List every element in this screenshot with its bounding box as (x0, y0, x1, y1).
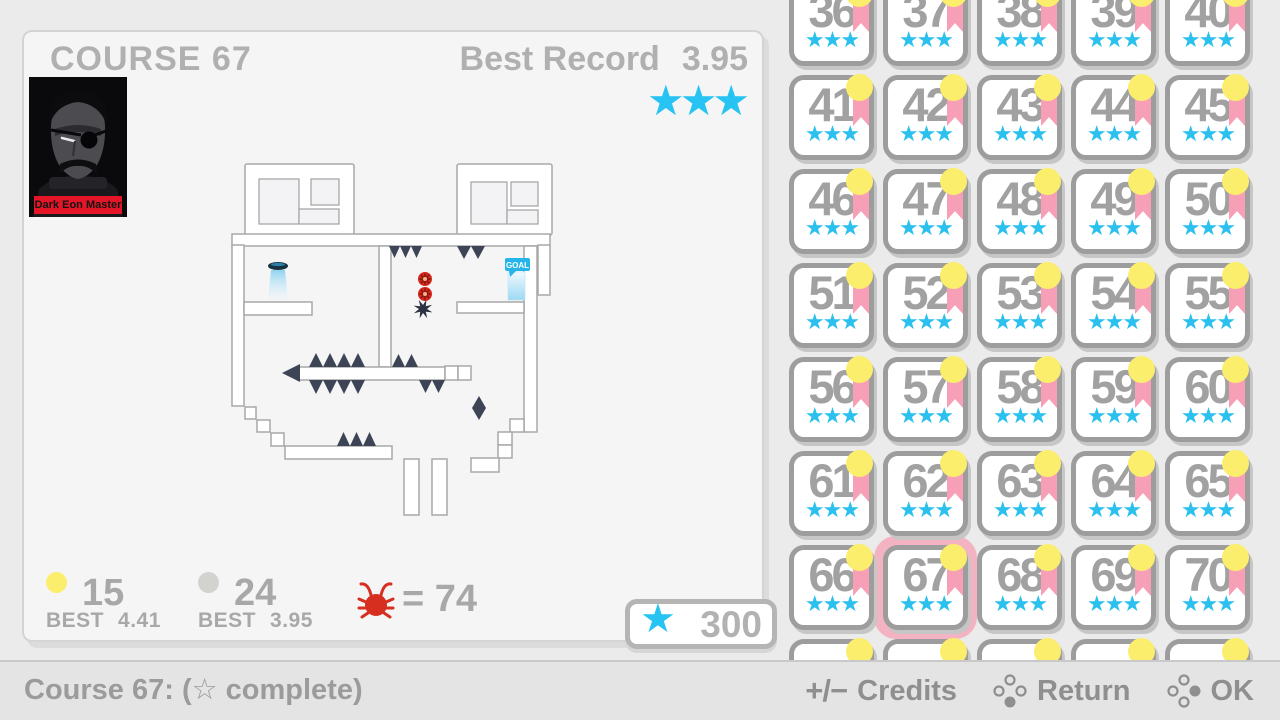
medal-circle-icon (1222, 450, 1249, 477)
star-icon: ★ (640, 596, 676, 642)
medal-circle-icon (1128, 262, 1155, 289)
course-cell-70[interactable]: 70★★★ (1165, 545, 1250, 630)
course-stars: ★★★ (888, 497, 963, 523)
course-stars: ★★★ (888, 591, 963, 617)
medal-circle-icon (940, 638, 967, 662)
course-stars: ★★★ (1076, 497, 1151, 523)
return-control[interactable]: Return (993, 674, 1130, 708)
silver-medal-best: BEST3.95 (198, 610, 313, 631)
course-stars: ★★★ (888, 403, 963, 429)
credits-control[interactable]: +/− Credits (805, 673, 957, 709)
course-grid: 36★★★37★★★38★★★39★★★40★★★41★★★42★★★43★★★… (780, 0, 1280, 662)
star-total-value: 300 (700, 605, 762, 645)
medal-circle-icon (1034, 168, 1061, 195)
course-cell-57[interactable]: 57★★★ (883, 357, 968, 442)
course-cell-66[interactable]: 66★★★ (789, 545, 874, 630)
course-cell-62[interactable]: 62★★★ (883, 451, 968, 536)
course-cell-47[interactable]: 47★★★ (883, 169, 968, 254)
course-stars: ★★★ (888, 309, 963, 335)
course-stars: ★★★ (982, 121, 1057, 147)
record-star-icon: ★ (712, 77, 750, 124)
medal-circle-icon (940, 168, 967, 195)
course-stars: ★★★ (1076, 403, 1151, 429)
course-cell-60[interactable]: 60★★★ (1165, 357, 1250, 442)
course-cell-68[interactable]: 68★★★ (977, 545, 1062, 630)
bottom-bar: Course 67: (☆ complete) +/− Credits Retu… (0, 660, 1280, 720)
ufo-icon (268, 262, 288, 300)
course-stars: ★★★ (794, 215, 869, 241)
course-stars: ★★★ (794, 403, 869, 429)
course-stars: ★★★ (1170, 591, 1245, 617)
course-cell-partial[interactable] (1165, 639, 1250, 662)
medal-circle-icon (1222, 638, 1249, 662)
medal-circle-icon (1128, 544, 1155, 571)
silver-medal-count: 24 (234, 574, 276, 612)
medal-circle-icon (940, 450, 967, 477)
course-cell-64[interactable]: 64★★★ (1071, 451, 1156, 536)
course-cell-partial[interactable] (789, 639, 874, 662)
course-stars: ★★★ (982, 403, 1057, 429)
medal-circle-icon (1222, 544, 1249, 571)
course-stars: ★★★ (1170, 309, 1245, 335)
medal-circle-icon (1034, 450, 1061, 477)
medal-circle-icon (846, 638, 873, 662)
course-stars: ★★★ (982, 591, 1057, 617)
course-cell-partial[interactable] (977, 639, 1062, 662)
course-cell-65[interactable]: 65★★★ (1165, 451, 1250, 536)
medal-circle-icon (1128, 168, 1155, 195)
medal-circle-icon (940, 544, 967, 571)
course-stars: ★★★ (794, 27, 869, 53)
course-cell-45[interactable]: 45★★★ (1165, 75, 1250, 160)
controls: +/− Credits Return O (805, 662, 1254, 720)
course-stars: ★★★ (982, 309, 1057, 335)
credits-label: Credits (857, 675, 957, 708)
course-cell-63[interactable]: 63★★★ (977, 451, 1062, 536)
course-stars: ★★★ (888, 215, 963, 241)
character-portrait: Dark Eon Master (29, 77, 127, 217)
status-text: Course 67: (☆ complete) (24, 662, 363, 718)
best-record: Best Record3.95 (460, 40, 748, 79)
best-record-label: Best Record (460, 40, 660, 78)
ok-control[interactable]: OK (1167, 674, 1255, 708)
course-detail-panel: COURSE 67 Best Record3.95 ★★★ Dark Eon M… (22, 30, 764, 642)
medal-circle-icon (1034, 356, 1061, 383)
course-cell-44[interactable]: 44★★★ (1071, 75, 1156, 160)
course-cell-38[interactable]: 38★★★ (977, 0, 1062, 66)
course-cell-51[interactable]: 51★★★ (789, 263, 874, 348)
course-stars: ★★★ (1076, 27, 1151, 53)
course-cell-58[interactable]: 58★★★ (977, 357, 1062, 442)
course-stars: ★★★ (794, 121, 869, 147)
medal-circle-icon (1222, 262, 1249, 289)
medal-circle-icon (1222, 168, 1249, 195)
course-stars: ★★★ (1170, 215, 1245, 241)
course-stars: ★★★ (1076, 215, 1151, 241)
ok-label: OK (1211, 675, 1255, 708)
course-cell-partial[interactable] (1071, 639, 1156, 662)
course-stars: ★★★ (1170, 403, 1245, 429)
a-button-cluster-icon (1167, 674, 1201, 708)
course-cell-69[interactable]: 69★★★ (1071, 545, 1156, 630)
medal-circle-icon (1034, 262, 1061, 289)
course-stars: ★★★ (1170, 121, 1245, 147)
return-label: Return (1037, 675, 1130, 708)
course-stars: ★★★ (888, 27, 963, 53)
course-stars: ★★★ (1076, 591, 1151, 617)
course-stars: ★★★ (982, 497, 1057, 523)
medal-circle-icon (1128, 356, 1155, 383)
course-stars: ★★★ (982, 215, 1057, 241)
medal-circle-icon (1034, 74, 1061, 101)
star-total-box: ★ 300 (625, 599, 777, 649)
medal-circle-icon (940, 356, 967, 383)
course-stars: ★★★ (1170, 27, 1245, 53)
medal-circle-icon (1128, 74, 1155, 101)
medal-circle-icon (1128, 450, 1155, 477)
course-cell-48[interactable]: 48★★★ (977, 169, 1062, 254)
course-cell-54[interactable]: 54★★★ (1071, 263, 1156, 348)
record-stars: ★★★ (652, 76, 750, 125)
medal-circle-icon (846, 356, 873, 383)
medal-circle-icon (1222, 74, 1249, 101)
enemy-imp-icon (356, 574, 396, 620)
course-cell-61[interactable]: 61★★★ (789, 451, 874, 536)
medal-circle-icon (1034, 544, 1061, 571)
course-cell-52[interactable]: 52★★★ (883, 263, 968, 348)
medal-circle-icon (846, 450, 873, 477)
course-cell-39[interactable]: 39★★★ (1071, 0, 1156, 66)
course-stars: ★★★ (794, 497, 869, 523)
course-cell-37[interactable]: 37★★★ (883, 0, 968, 66)
plus-minus-icon: +/− (805, 673, 847, 709)
mine-icon (418, 272, 432, 301)
course-cell-49[interactable]: 49★★★ (1071, 169, 1156, 254)
course-stars: ★★★ (794, 309, 869, 335)
course-cell-36[interactable]: 36★★★ (789, 0, 874, 66)
page-title: COURSE 67 (50, 40, 252, 79)
course-cell-59[interactable]: 59★★★ (1071, 357, 1156, 442)
course-stars: ★★★ (982, 27, 1057, 53)
course-cell-partial[interactable] (883, 639, 968, 662)
course-stars: ★★★ (888, 121, 963, 147)
gold-medal-count: 15 (82, 574, 124, 612)
gold-medal-best: BEST4.41 (46, 610, 161, 631)
medal-circle-icon (846, 544, 873, 571)
enemy-total: = 74 (402, 580, 477, 618)
course-cell-42[interactable]: 42★★★ (883, 75, 968, 160)
course-cell-56[interactable]: 56★★★ (789, 357, 874, 442)
course-cell-41[interactable]: 41★★★ (789, 75, 874, 160)
medal-circle-icon (846, 262, 873, 289)
b-button-cluster-icon (993, 674, 1027, 708)
course-cell-43[interactable]: 43★★★ (977, 75, 1062, 160)
medal-circle-icon (846, 168, 873, 195)
goal-label: GOAL (506, 261, 529, 270)
pinwheel-icon (414, 300, 433, 319)
medal-circle-icon (1128, 638, 1155, 662)
course-cell-67[interactable]: 67★★★ (883, 545, 968, 630)
medal-circle-icon (940, 74, 967, 101)
course-cell-55[interactable]: 55★★★ (1165, 263, 1250, 348)
course-map-preview: GOAL (230, 160, 554, 520)
course-stars: ★★★ (1076, 121, 1151, 147)
best-record-value: 3.95 (682, 40, 748, 78)
course-stars: ★★★ (794, 591, 869, 617)
course-stars: ★★★ (1076, 309, 1151, 335)
course-cell-53[interactable]: 53★★★ (977, 263, 1062, 348)
medal-circle-icon (1034, 638, 1061, 662)
course-cell-46[interactable]: 46★★★ (789, 169, 874, 254)
screen: COURSE 67 Best Record3.95 ★★★ Dark Eon M… (0, 0, 1280, 720)
course-cell-40[interactable]: 40★★★ (1165, 0, 1250, 66)
medal-circle-icon (940, 262, 967, 289)
medal-circle-icon (1222, 356, 1249, 383)
medal-circle-icon (846, 74, 873, 101)
portrait-banner: Dark Eon Master (34, 196, 122, 214)
course-stars: ★★★ (1170, 497, 1245, 523)
course-cell-50[interactable]: 50★★★ (1165, 169, 1250, 254)
